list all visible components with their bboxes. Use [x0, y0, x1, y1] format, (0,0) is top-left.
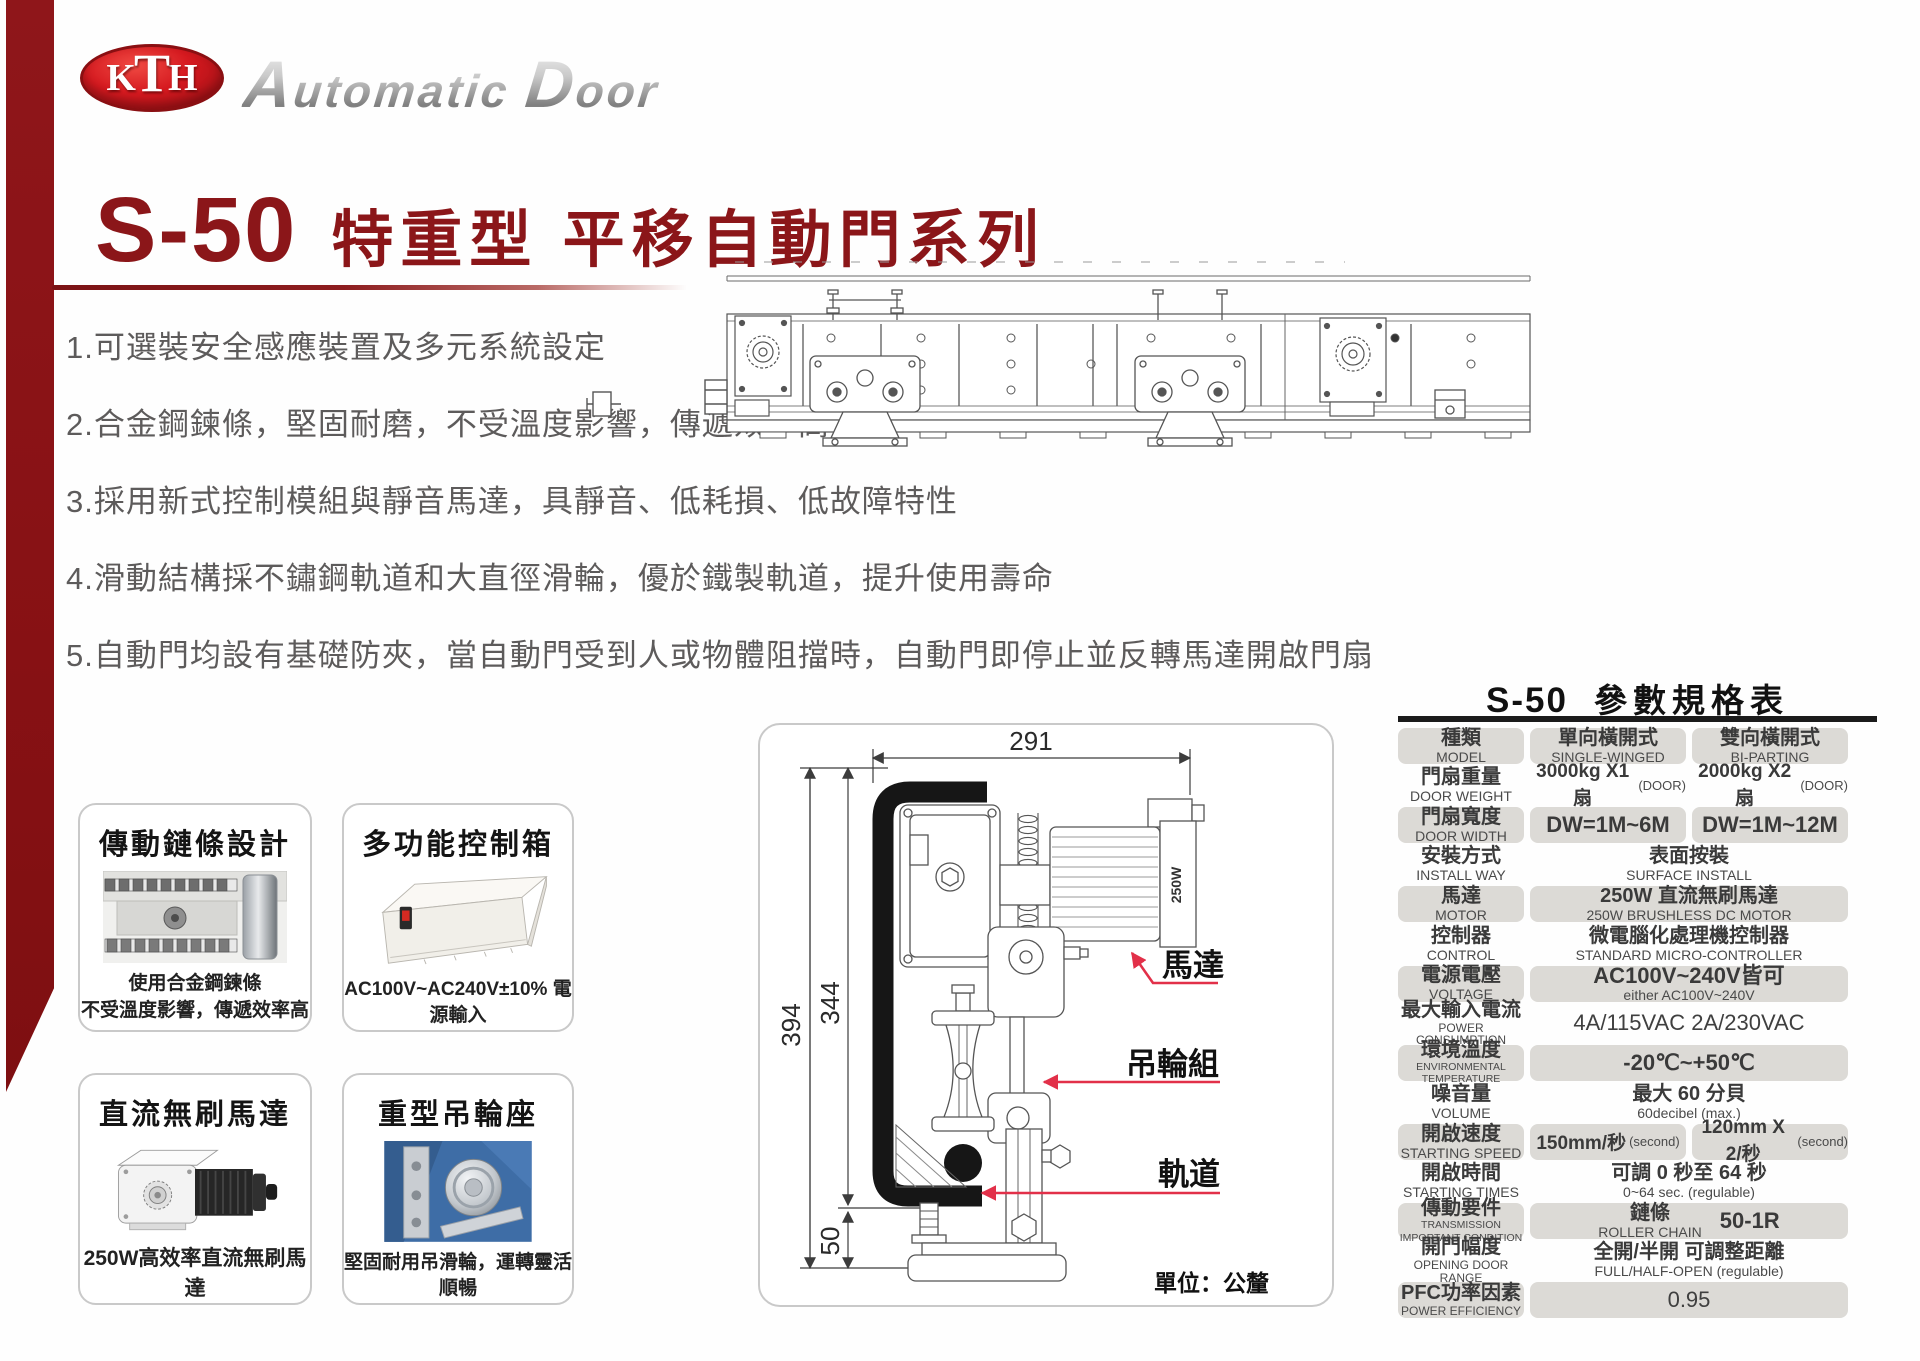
feature-bullet: 1.可選裝安全感應裝置及多元系統設定: [66, 322, 606, 367]
table-row-power-consumption: 最大輸入電流POWER CONSUMPTION 4A/115VAC 2A/230…: [1398, 1005, 1880, 1041]
table-row-environment-temp: 環境溫度ENVIRONMENTALTEMPERATURE -20℃~+50℃: [1398, 1045, 1880, 1081]
table-row-control: 控制器CONTROL 微電腦化處理機控制器STANDARD MICRO-CONT…: [1398, 926, 1880, 962]
feature-bullet: 5.自動門均設有基礎防夾，當自動門受到人或物體阻擋時，自動門即停止並反轉馬達開啟…: [66, 630, 1374, 675]
kth-logo: KTH: [80, 44, 224, 112]
table-row-motor: 馬達MOTOR 250W 直流無刷馬達250W BRUSHLESS DC MOT…: [1398, 886, 1880, 922]
dim-394: 394: [776, 1003, 806, 1046]
table-row-door-width: 門扇寬度DOOR WIDTH DW=1M~6M DW=1M~12M: [1398, 807, 1880, 843]
card-title: 多功能控制箱: [362, 821, 554, 863]
table-row-transmission: 傳動要件TRANSMISSIONIMPORTANT CONDITION 鏈條RO…: [1398, 1203, 1880, 1239]
table-row-power-efficiency: PFC功率因素POWER EFFICIENCY 0.95: [1398, 1282, 1880, 1318]
feature-card-roller: 重型吊輪座 堅固耐用吊滑輪，運轉靈活順暢: [342, 1073, 574, 1305]
callout-rail: 軌道: [1158, 1157, 1220, 1192]
callout-motor: 馬達: [1162, 948, 1224, 983]
catalog-page: KTH Automatic Door S-50 特重型 平移自動門系列 1.可選…: [0, 0, 1920, 1361]
card-title: 重型吊輪座: [378, 1091, 538, 1133]
left-ribbon-decoration: [6, 0, 54, 1092]
cross-section-diagram-box: 291 394 344 50: [758, 723, 1334, 1307]
card-caption: 250W高效率直流無刷馬達: [80, 1244, 310, 1303]
table-row-starting-speed: 開啟速度STARTING SPEED 150mm/秒(second) 120mm…: [1398, 1124, 1880, 1160]
callout-roller-set: 吊輪組: [1126, 1047, 1219, 1082]
feature-card-control-box: 多功能控制箱 AC100V~AC240V±10% 電源輸入: [342, 803, 574, 1032]
rail-rod-section: [944, 1144, 982, 1182]
table-row-model: 種類MODEL 單向橫開式SINGLE-WINGED 雙向橫開式BI-PARTI…: [1398, 728, 1880, 764]
logo-letter: K: [106, 56, 136, 100]
card-caption: 堅固耐用吊滑輪，運轉靈活順暢: [344, 1250, 572, 1303]
card-caption: 使用合金鋼鍊條不受溫度影響，傳遞效率高: [81, 971, 309, 1024]
model-code: S-50: [95, 178, 297, 283]
dc-motor-photo: [103, 1141, 287, 1236]
table-row-opening-range: 開門幅度OPENING DOOR RANGE 全開/半開 可調整距離FULL/H…: [1398, 1243, 1880, 1279]
table-row-install-way: 安裝方式INSTALL WAY 表面按裝SURFACE INSTALL: [1398, 847, 1880, 883]
logo-letter: H: [168, 56, 198, 100]
roller-hanger-photo: [382, 1141, 534, 1242]
card-caption: AC100V~AC240V±10% 電源輸入: [344, 977, 572, 1030]
logo-letter: T: [134, 42, 170, 104]
track-assembly-drawing: [585, 260, 1535, 458]
feature-card-chain: 傳動鏈條設計 使用合金鋼鍊條不受溫度影響，傳遞效率高: [78, 803, 312, 1032]
dim-291: 291: [1009, 726, 1052, 756]
card-title: 傳動鏈條設計: [99, 821, 291, 863]
table-row-voltage: 電源電壓VOLTAGE AC100V~240V皆可either AC100V~2…: [1398, 966, 1880, 1002]
table-row-volume: 噪音量VOLUME 最大 60 分貝60decibel (max.): [1398, 1084, 1880, 1120]
dim-344: 344: [815, 981, 845, 1024]
cross-section-drawing: 291 394 344 50: [760, 725, 1328, 1301]
feature-card-motor: 直流無刷馬達 250W高效率直流無刷馬達: [78, 1073, 312, 1305]
motor-wattage-tag: 250W: [1168, 866, 1184, 903]
table-row-starting-times: 開啟時間STARTING TIMES 可調 0 秒至 64 秒0~64 sec.…: [1398, 1164, 1880, 1200]
brand-wordmark: Automatic Door: [240, 46, 664, 122]
control-box-photo: [362, 871, 554, 969]
spec-table-title: S-50參數規格表: [1398, 674, 1877, 716]
spec-table: S-50參數規格表 種類MODEL 單向橫開式SINGLE-WINGED 雙向橫…: [1398, 674, 1880, 1322]
table-row-door-weight: 門扇重量DOOR WEIGHT 3000kg X1 扇(DOOR) 2000kg…: [1398, 768, 1880, 804]
chain-drive-photo: [103, 871, 287, 963]
feature-bullet: 4.滑動結構採不鏽鋼軌道和大直徑滑輪，優於鐵製軌道，提升使用壽命: [66, 553, 1054, 598]
feature-bullet: 3.採用新式控制模組與靜音馬達，具靜音、低耗損、低故障特性: [66, 476, 958, 521]
unit-note: 單位：公釐: [1154, 1270, 1269, 1296]
card-title: 直流無刷馬達: [99, 1091, 291, 1133]
dim-50: 50: [815, 1227, 845, 1256]
